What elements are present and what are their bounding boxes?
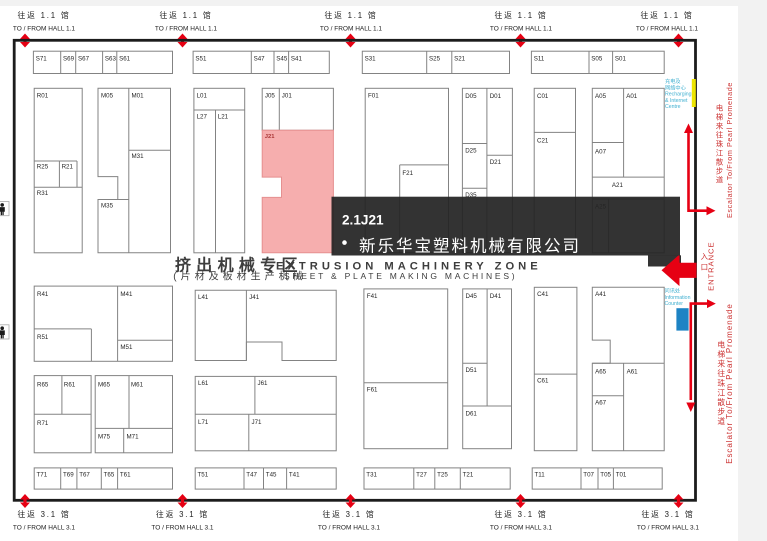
svg-text:S63: S63 <box>105 56 117 63</box>
svg-text:R71: R71 <box>37 420 49 427</box>
svg-text:L41: L41 <box>198 294 209 301</box>
svg-text:T41: T41 <box>289 471 300 478</box>
svg-text:R51: R51 <box>37 334 49 341</box>
svg-text:问讯处: 问讯处 <box>665 287 681 295</box>
svg-text:T69: T69 <box>63 471 74 478</box>
svg-text:L01: L01 <box>197 92 208 99</box>
svg-text:C61: C61 <box>537 377 549 384</box>
svg-text:A61: A61 <box>627 368 639 375</box>
svg-text:ENTRANCE: ENTRANCE <box>706 242 715 291</box>
svg-text:S45: S45 <box>276 56 288 63</box>
svg-text:往返 3.1 馆: 往返 3.1 馆 <box>642 509 695 519</box>
svg-text:网络中心: 网络中心 <box>665 83 686 91</box>
svg-text:往返 1.1 馆: 往返 1.1 馆 <box>18 10 71 20</box>
svg-text:S25: S25 <box>429 56 441 63</box>
svg-text:往返 3.1 馆: 往返 3.1 馆 <box>323 509 376 519</box>
svg-text:S21: S21 <box>454 56 466 63</box>
svg-text:T11: T11 <box>535 471 546 478</box>
svg-text:R21: R21 <box>62 163 74 170</box>
svg-text:道: 道 <box>716 175 724 185</box>
svg-text:往返 1.1 馆: 往返 1.1 馆 <box>325 10 378 20</box>
svg-text:江: 江 <box>716 149 724 158</box>
svg-text:R41: R41 <box>37 291 49 298</box>
svg-text:R25: R25 <box>37 163 49 170</box>
svg-text:TO / FROM HALL 3.1: TO / FROM HALL 3.1 <box>637 524 700 531</box>
svg-text:往: 往 <box>716 130 724 140</box>
svg-text:S71: S71 <box>36 56 48 63</box>
svg-text:J05: J05 <box>265 92 276 99</box>
svg-text:A05: A05 <box>595 93 607 100</box>
svg-text:S51: S51 <box>195 56 207 63</box>
svg-text:A41: A41 <box>595 291 607 298</box>
svg-text:L21: L21 <box>218 114 229 121</box>
svg-text:往返 1.1 馆: 往返 1.1 馆 <box>160 10 213 20</box>
svg-text:D51: D51 <box>466 367 478 374</box>
svg-text:Information: Information <box>665 295 691 301</box>
svg-text:T47: T47 <box>246 471 257 478</box>
svg-text:SHEET & PLATE MAKING MACHINES): SHEET & PLATE MAKING MACHINES) <box>284 271 517 281</box>
svg-text:F61: F61 <box>367 387 378 394</box>
svg-text:TO / FROM HALL 3.1: TO / FROM HALL 3.1 <box>151 524 214 531</box>
svg-text:C01: C01 <box>537 93 549 100</box>
svg-text:D05: D05 <box>465 93 477 100</box>
svg-text:往返 3.1 馆: 往返 3.1 馆 <box>18 509 71 519</box>
svg-text:C41: C41 <box>537 291 549 298</box>
svg-text:M65: M65 <box>98 381 111 388</box>
svg-text:S61: S61 <box>119 56 131 63</box>
svg-text:Counter: Counter <box>665 301 684 307</box>
svg-text:TO / FROM HALL 3.1: TO / FROM HALL 3.1 <box>13 524 76 531</box>
svg-text:往返 3.1 馆: 往返 3.1 馆 <box>495 509 548 519</box>
svg-text:D01: D01 <box>490 93 502 100</box>
svg-text:电: 电 <box>716 103 724 113</box>
svg-text:T31: T31 <box>366 471 377 478</box>
svg-text:步: 步 <box>716 167 724 176</box>
svg-text:T45: T45 <box>266 471 277 478</box>
svg-text:S69: S69 <box>63 56 75 63</box>
svg-text:T25: T25 <box>437 471 448 478</box>
svg-text:梯: 梯 <box>716 112 724 122</box>
svg-text:S11: S11 <box>534 56 545 63</box>
svg-text:A01: A01 <box>626 93 638 100</box>
svg-text:珠: 珠 <box>716 139 724 149</box>
svg-text:R31: R31 <box>37 190 49 197</box>
svg-text:新乐华宝塑料机械有限公司: 新乐华宝塑料机械有限公司 <box>359 236 581 255</box>
svg-text:M61: M61 <box>131 381 144 388</box>
svg-text:TO / FROM HALL 1.1: TO / FROM HALL 1.1 <box>490 25 553 32</box>
svg-text:来: 来 <box>716 122 724 131</box>
svg-text:F01: F01 <box>368 92 379 99</box>
svg-text:J01: J01 <box>282 92 293 99</box>
svg-text:R01: R01 <box>37 92 49 99</box>
svg-text:M71: M71 <box>127 434 140 441</box>
svg-text:A65: A65 <box>595 368 607 375</box>
svg-text:T21: T21 <box>463 471 474 478</box>
svg-text:& Internet: & Internet <box>665 98 688 104</box>
svg-text:T67: T67 <box>79 471 90 478</box>
svg-text:T61: T61 <box>120 471 131 478</box>
svg-text:往返 1.1 馆: 往返 1.1 馆 <box>495 10 548 20</box>
svg-text:J61: J61 <box>258 380 269 387</box>
svg-text:TO / FROM HALL 1.1: TO / FROM HALL 1.1 <box>636 25 699 32</box>
svg-text:M01: M01 <box>132 92 145 99</box>
svg-text:TO / FROM HALL 1.1: TO / FROM HALL 1.1 <box>13 25 76 32</box>
svg-text:充电及: 充电及 <box>665 77 681 85</box>
svg-text:J71: J71 <box>252 419 263 426</box>
svg-text:T65: T65 <box>104 471 115 478</box>
svg-text:L71: L71 <box>198 419 209 426</box>
svg-text:TO / FROM HALL 1.1: TO / FROM HALL 1.1 <box>320 25 383 32</box>
svg-text:D21: D21 <box>490 159 502 166</box>
svg-text:M35: M35 <box>101 203 114 210</box>
svg-text:T51: T51 <box>198 471 209 478</box>
svg-text:Recharging: Recharging <box>665 92 692 98</box>
svg-text:C21: C21 <box>537 137 549 144</box>
svg-text:TO / FROM HALL 3.1: TO / FROM HALL 3.1 <box>318 524 381 531</box>
svg-text:Escalator To/From Pearl Promen: Escalator To/From Pearl Promenade <box>725 303 734 464</box>
svg-text:往返 1.1 馆: 往返 1.1 馆 <box>641 10 694 20</box>
svg-text:S05: S05 <box>591 56 603 63</box>
svg-text:S41: S41 <box>291 56 303 63</box>
svg-text:TO / FROM HALL 3.1: TO / FROM HALL 3.1 <box>490 524 553 531</box>
svg-text:Centre: Centre <box>665 104 681 110</box>
svg-text:S01: S01 <box>615 56 627 63</box>
svg-text:L61: L61 <box>198 380 209 387</box>
svg-text:S31: S31 <box>365 56 377 63</box>
svg-text:L27: L27 <box>197 114 208 121</box>
svg-text:T07: T07 <box>583 471 594 478</box>
svg-text:T71: T71 <box>37 471 48 478</box>
svg-text:M31: M31 <box>132 153 145 160</box>
svg-text:T01: T01 <box>616 471 627 478</box>
svg-text:F21: F21 <box>402 170 413 177</box>
svg-text:D25: D25 <box>465 148 477 155</box>
svg-text:A21: A21 <box>612 182 624 189</box>
svg-text:M51: M51 <box>120 344 133 351</box>
svg-text:T27: T27 <box>416 471 427 478</box>
svg-text:D41: D41 <box>490 293 502 300</box>
svg-text:A67: A67 <box>595 400 607 407</box>
svg-text:往返 3.1 馆: 往返 3.1 馆 <box>156 509 209 519</box>
svg-text:散: 散 <box>716 157 724 167</box>
svg-text:R61: R61 <box>64 381 76 388</box>
svg-text:D45: D45 <box>466 293 478 300</box>
svg-text:J21: J21 <box>265 134 275 140</box>
svg-text:S67: S67 <box>78 56 90 63</box>
svg-text:R65: R65 <box>37 381 49 388</box>
svg-text:D61: D61 <box>466 411 478 418</box>
svg-text:J41: J41 <box>249 294 260 301</box>
svg-text:T05: T05 <box>600 471 611 478</box>
svg-text:TO / FROM HALL 1.1: TO / FROM HALL 1.1 <box>155 25 218 32</box>
svg-text:M41: M41 <box>120 291 133 298</box>
svg-text:F41: F41 <box>367 293 378 300</box>
svg-text:A07: A07 <box>595 148 607 155</box>
svg-text:2.1J21: 2.1J21 <box>342 213 384 228</box>
svg-text:Escalator To/From Pearl Promen: Escalator To/From Pearl Promenade <box>725 82 734 218</box>
svg-text:M05: M05 <box>101 92 114 99</box>
svg-text:S47: S47 <box>254 56 266 63</box>
svg-text:M75: M75 <box>98 434 111 441</box>
